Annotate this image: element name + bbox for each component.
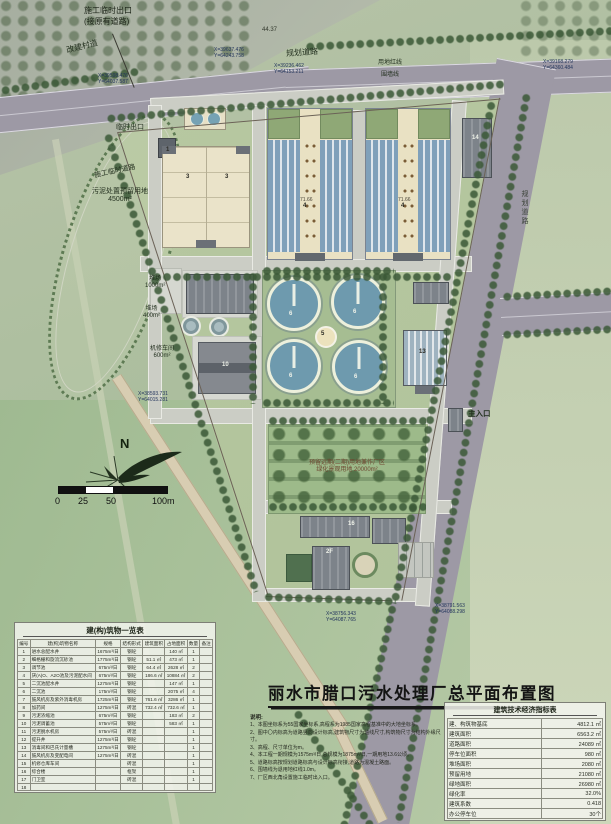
table-cell: 综合楼 <box>30 768 95 776</box>
table-cell: 11 <box>18 728 31 736</box>
table-cell: 1 <box>187 696 200 704</box>
table-cell <box>200 776 213 784</box>
table-cell: 10 <box>18 720 31 728</box>
note-line: 2、图中〇内标高为道路竖向设计标高,建筑物尺寸为轴线尺寸,构筑物尺寸为结构外缘尺… <box>250 730 446 745</box>
coordinate-label: X=39236.462Y=64153.211 <box>274 64 304 76</box>
building-number: 16 <box>348 521 355 527</box>
label-construction-exit: 施工临时出口 (接原有道路) <box>84 6 132 26</box>
table-cell <box>200 664 213 672</box>
label-yard1-text: 堆场 <box>145 276 165 283</box>
distribution-well <box>315 326 337 348</box>
table-cell: 1 <box>18 648 31 656</box>
table-row: 10污泥调蓄池575m³/日钢砼583 ㎡1 <box>18 720 213 728</box>
scale-tick-50: 50 <box>106 496 116 506</box>
table-cell: 575m³/日 <box>95 720 120 728</box>
table-cell <box>143 736 165 744</box>
table-cell <box>200 736 213 744</box>
label-construction-exit-sub: (接原有道路) <box>84 17 132 26</box>
table-row: 办公停车位30个 <box>448 809 603 819</box>
table-cell: 1 <box>187 752 200 760</box>
table-cell <box>165 760 187 768</box>
table-row: 建、构筑物基底4812.1 ㎡ <box>448 719 603 729</box>
table-cell <box>95 784 120 791</box>
table-cell: 3286 ㎡ <box>165 696 187 704</box>
table-cell: 钢砼 <box>121 720 143 728</box>
building-number: 6 <box>354 374 357 380</box>
table-cell: 1 <box>187 656 200 664</box>
table-cell <box>200 688 213 696</box>
clarifier-tank-sw <box>267 339 321 393</box>
table-cell: 583 ㎡ <box>165 720 187 728</box>
clarifier-tank-nw <box>267 277 321 331</box>
table-cell <box>200 760 213 768</box>
building-office-main <box>300 516 370 538</box>
table-cell: 0.418 <box>542 799 603 809</box>
label-main-entrance: 主入口 <box>468 410 491 419</box>
table-row: 15机修仓库车间砖混1 <box>18 760 213 768</box>
indicators-table: 建筑技术经济指标表 建、构筑物基底4812.1 ㎡建筑面积6563.2 ㎡道路面… <box>444 702 606 821</box>
building-dosing-room <box>413 282 449 304</box>
table-row: 建筑面积6563.2 ㎡ <box>448 729 603 739</box>
building-number: 3 <box>225 174 228 180</box>
table-cell: 13 <box>18 744 31 752</box>
table-cell: 2628 ㎡ <box>165 664 187 672</box>
table-cell: 1775m³/日 <box>95 656 120 664</box>
table-cell <box>95 776 120 784</box>
table-row: 16综合楼框架1 <box>18 768 213 776</box>
table-cell: 6563.2 ㎡ <box>542 729 603 739</box>
table-cell <box>200 720 213 728</box>
label-yard2: 堆场 400m² <box>143 306 160 320</box>
table-cell <box>143 712 165 720</box>
table-cell: 4 <box>18 672 31 680</box>
table-header: 占地面积 <box>165 640 187 648</box>
table-header: 建筑面积 <box>143 640 165 648</box>
building-number: 6 <box>289 373 292 379</box>
table-cell: 1275m³/日 <box>95 752 120 760</box>
table-cell: 675m³/日 <box>95 672 120 680</box>
table-cell: 51.1 ㎡ <box>143 656 165 664</box>
table-row: 7鼓风机房及紫外消毒机房1725m³/日钢砼761.6 ㎡3286 ㎡1 <box>18 696 213 704</box>
table-row: 3调节池675m³/日钢砼64.4 ㎡2628 ㎡2 <box>18 664 213 672</box>
buildings-table: 建(构)筑物一览表 编号建(构)筑物名称规格结构形式建筑面积占地面积数量备注1进… <box>14 622 216 793</box>
table-cell: 1 <box>187 768 200 776</box>
building-number: 14 <box>472 135 479 141</box>
table-cell: 1675m³/日 <box>95 648 120 656</box>
building-number: 2F <box>326 549 333 555</box>
notes-list: 1、本图坐标系为55国家坐标系,高程系为1985国家高程基准中的大地坐标系。2、… <box>250 722 446 782</box>
table-cell: 3 <box>18 664 31 672</box>
table-cell <box>143 776 165 784</box>
table-cell: 建、构筑物基底 <box>448 719 542 729</box>
table-cell: 污泥浓缩池 <box>30 712 95 720</box>
building-gatehouse <box>448 408 463 432</box>
coordinate-label: X=39598.476Y=64037.587 <box>98 74 128 86</box>
table-cell <box>200 656 213 664</box>
table-cell: 鼓风机房及变配电间 <box>30 752 95 760</box>
table-cell <box>200 744 213 752</box>
table-cell: 761.6 ㎡ <box>143 696 165 704</box>
table-cell <box>200 712 213 720</box>
table-cell: 9 <box>18 712 31 720</box>
label-planned-road-top: 规划道路 <box>286 47 319 58</box>
tree-row <box>248 272 258 404</box>
table-cell: 2080 ㎡ <box>542 759 603 769</box>
table-row: 6二沉池175m³/日钢砼2075 ㎡4 <box>18 688 213 696</box>
label-workshop-text: 机修车间 <box>150 346 174 353</box>
table-cell: 4 <box>187 688 200 696</box>
table-cell: 砖混 <box>121 704 143 712</box>
notes-block: 说明: 1、本图坐标系为55国家坐标系,高程系为1985国家高程基准中的大地坐标… <box>250 714 446 782</box>
building-number: 4 <box>303 203 306 209</box>
table-cell: 1 <box>187 736 200 744</box>
table-cell: 575m³/日 <box>95 728 120 736</box>
table-cell: 钢砼 <box>121 672 143 680</box>
table-cell: 5 <box>18 680 31 688</box>
label-yard1-area: 1000m² <box>145 283 165 290</box>
table-cell <box>143 760 165 768</box>
label-red-line: 用地红线 <box>378 60 402 67</box>
table-cell: 186.6 ㎡ <box>143 672 165 680</box>
table-cell <box>200 704 213 712</box>
sludge-thickener-2 <box>209 317 229 337</box>
table-row: 13消毒间和巴氏计量槽1275m³/日钢砼1 <box>18 744 213 752</box>
table-row: 14鼓风机房及变配电间1275m³/日砖混1 <box>18 752 213 760</box>
table-cell: 绿化率 <box>448 789 542 799</box>
building-number: 13 <box>419 349 426 355</box>
table-cell: 2075 ㎡ <box>165 688 187 696</box>
tree-row <box>268 502 426 512</box>
building-regulating-basin <box>162 146 250 248</box>
table-cell: 砖混 <box>121 728 143 736</box>
scale-tick-0: 0 <box>55 496 60 506</box>
scale-tick-100: 100m <box>152 496 175 506</box>
table-row: 11污泥脱水机房575m³/日砖混1 <box>18 728 213 736</box>
table-cell: 32.0% <box>542 789 603 799</box>
table-cell <box>165 736 187 744</box>
table-cell: 进水总配水井 <box>30 648 95 656</box>
table-header: 数量 <box>187 640 200 648</box>
note-line: 6、围墙线为退用地红线1.0m。 <box>250 767 446 775</box>
table-cell: 砖混 <box>121 752 143 760</box>
table-cell: 24089 ㎡ <box>542 739 603 749</box>
table-cell: 砖混 <box>121 776 143 784</box>
clarifier-tank-ne <box>331 275 385 329</box>
table-cell <box>165 776 187 784</box>
table-cell: 732.4 ㎡ <box>143 704 165 712</box>
table-cell: 2 <box>187 712 200 720</box>
table-cell: 1 <box>187 704 200 712</box>
table-cell: 预留用地 <box>448 769 542 779</box>
label-sludge-reserve-area: 4500m² <box>92 196 148 204</box>
table-cell <box>143 784 165 791</box>
table-cell <box>143 648 165 656</box>
table-cell: 1 <box>187 760 200 768</box>
table-cell <box>200 672 213 680</box>
table-cell <box>165 784 187 791</box>
scale-bar <box>58 486 168 494</box>
basin-corner-block <box>236 146 250 154</box>
table-cell: 18 <box>18 784 31 791</box>
table-cell <box>165 752 187 760</box>
table-cell: 1275m³/日 <box>95 680 120 688</box>
table-cell: 16 <box>18 768 31 776</box>
table-cell: 1275m³/日 <box>95 704 120 712</box>
table-row: 道路面积24089 ㎡ <box>448 739 603 749</box>
table-cell: 15 <box>18 760 31 768</box>
label-reserved-line1: 预留远期(二期)用地兼作厂区 <box>272 460 422 467</box>
building-number: 4 <box>401 203 404 209</box>
table-cell <box>95 760 120 768</box>
pond <box>286 554 312 582</box>
table-cell: 二沉池配水井 <box>30 680 95 688</box>
table-cell: 473 ㎡ <box>165 656 187 664</box>
table-cell: 1 <box>187 776 200 784</box>
table-cell: 钢砼 <box>121 736 143 744</box>
table-header: 编号 <box>18 640 31 648</box>
table-cell: 183 ㎡ <box>165 712 187 720</box>
coordinate-label: X=38791.563Y=64088.298 <box>435 604 465 616</box>
table-cell: 2 <box>18 656 31 664</box>
building-number: 5 <box>321 331 324 337</box>
table-cell <box>143 688 165 696</box>
coordinate-label: X=39637.476Y=64243.758 <box>214 48 244 60</box>
basin-corner-block <box>196 240 216 248</box>
table-cell <box>200 696 213 704</box>
table-cell: 2 <box>187 664 200 672</box>
table-cell: 钢砼 <box>121 664 143 672</box>
table-cell <box>200 728 213 736</box>
table-cell: 消毒间和巴氏计量槽 <box>30 744 95 752</box>
table-cell <box>143 680 165 688</box>
table-cell: 调节池 <box>30 664 95 672</box>
table-cell: 建筑面积 <box>448 729 542 739</box>
table-cell: 砖混 <box>121 760 143 768</box>
table-cell <box>30 784 95 791</box>
table-cell: 堆场面积 <box>448 759 542 769</box>
table-row: 建筑系数0.418 <box>448 799 603 809</box>
label-yard2-area: 400m² <box>143 313 160 320</box>
table-cell <box>143 768 165 776</box>
table-cell: 12 <box>18 736 31 744</box>
label-workshop-area: 600m² <box>150 353 174 360</box>
table-cell <box>200 768 213 776</box>
table-cell: 绿地面积 <box>448 779 542 789</box>
table-cell: 钢砼 <box>121 696 143 704</box>
note-line: 1、本图坐标系为55国家坐标系,高程系为1985国家高程基准中的大地坐标系。 <box>250 722 446 730</box>
label-workshop: 机修车间 600m² <box>150 346 174 360</box>
label-yard1: 堆场 1000m² <box>145 276 165 290</box>
table-cell: 26980 ㎡ <box>542 779 603 789</box>
coordinate-label: X=38593.731Y=64015.281 <box>138 392 168 404</box>
table-header: 规格 <box>95 640 120 648</box>
tree-row <box>268 416 426 426</box>
table-cell <box>143 720 165 728</box>
internal-road-between-basins <box>352 110 366 260</box>
building-number: 10 <box>222 362 229 368</box>
table-cell: 147 ㎡ <box>165 680 187 688</box>
table-row: 4厌(A)O、A2O池及污泥配水间675m³/日钢砼186.6 ㎡10884 ㎡… <box>18 672 213 680</box>
table-cell: 停车位面积 <box>448 749 542 759</box>
table-cell <box>121 784 143 791</box>
table-row: 9污泥浓缩池675m³/日钢砼183 ㎡2 <box>18 712 213 720</box>
table-cell: 框架 <box>121 768 143 776</box>
label-reserved-line2: 绿化景观用地 20000m² <box>272 467 422 474</box>
table-cell: 7 <box>18 696 31 704</box>
table-cell <box>143 728 165 736</box>
table-cell: 1275m³/日 <box>95 736 120 744</box>
table-cell: 675m³/日 <box>95 664 120 672</box>
table-cell: 钢砼 <box>121 648 143 656</box>
table-cell: 加药间 <box>30 704 95 712</box>
scale-tick-25: 25 <box>78 496 88 506</box>
table-cell: 细格栅和旋流沉砂池 <box>30 656 95 664</box>
table-cell: 建筑系数 <box>448 799 542 809</box>
coordinate-label: X=39168.279Y=64360.484 <box>543 60 573 72</box>
table-cell: 6 <box>18 688 31 696</box>
table-cell: 175m³/日 <box>95 688 120 696</box>
label-sludge-reserve: 污泥处置预留用地 4500m² <box>92 188 148 204</box>
building-a2o-basin-east <box>365 108 451 260</box>
table-cell: 10884 ㎡ <box>165 672 187 680</box>
table-cell: 办公停车位 <box>448 809 542 819</box>
table-cell: 980 ㎡ <box>542 749 603 759</box>
table-cell: 提升井 <box>30 736 95 744</box>
table-cell: 1275m³/日 <box>95 744 120 752</box>
table-cell: 14 <box>18 752 31 760</box>
indicators-table-grid: 建、构筑物基底4812.1 ㎡建筑面积6563.2 ㎡道路面积24089 ㎡停车… <box>447 718 603 819</box>
table-cell <box>165 768 187 776</box>
table-row: 绿化率32.0% <box>448 789 603 799</box>
table-cell: 1 <box>187 744 200 752</box>
table-cell: 1 <box>187 728 200 736</box>
label-temp-exit: 临时出口 <box>116 124 144 132</box>
table-cell: 675m³/日 <box>95 712 120 720</box>
building-number: 1 <box>166 147 169 153</box>
table-cell: 污泥脱水机房 <box>30 728 95 736</box>
label-planned-road-right: 规划道路 <box>520 190 528 226</box>
buildings-table-title: 建(构)筑物一览表 <box>23 625 207 637</box>
label-yard2-text: 堆场 <box>143 306 160 313</box>
table-cell: 机修仓库车间 <box>30 760 95 768</box>
table-row: 8加药间1275m³/日砖混732.4 ㎡732.6 ㎡1 <box>18 704 213 712</box>
table-cell <box>95 768 120 776</box>
table-cell: 30个 <box>542 809 603 819</box>
table-cell: 732.6 ㎡ <box>165 704 187 712</box>
table-cell: 1725m³/日 <box>95 696 120 704</box>
table-cell: 钢砼 <box>121 712 143 720</box>
table-row: 堆场面积2080 ㎡ <box>448 759 603 769</box>
table-cell: 2 <box>187 672 200 680</box>
table-cell: 门卫室 <box>30 776 95 784</box>
tree-row <box>378 272 388 404</box>
table-row: 停车位面积980 ㎡ <box>448 749 603 759</box>
table-header: 备注 <box>200 640 213 648</box>
courtyard-garden <box>352 552 378 578</box>
table-row: 预留用地21080 ㎡ <box>448 769 603 779</box>
table-cell: 钢砼 <box>121 680 143 688</box>
table-header: 建(构)筑物名称 <box>30 640 95 648</box>
building-a2o-basin-west <box>267 108 353 260</box>
coordinate-label: X=38756.343Y=64087.765 <box>326 612 356 624</box>
label-reserved-area: 预留远期(二期)用地兼作厂区 绿化景观用地 20000m² <box>272 460 422 474</box>
table-header: 结构形式 <box>121 640 143 648</box>
label-sludge-reserve-text: 污泥处置预留用地 <box>92 188 148 196</box>
sludge-thickener-1 <box>181 316 201 336</box>
table-cell <box>200 752 213 760</box>
table-cell <box>143 744 165 752</box>
table-row: 17门卫室砖混1 <box>18 776 213 784</box>
building-number: 3 <box>186 174 189 180</box>
table-cell: 厌(A)O、A2O池及污泥配水间 <box>30 672 95 680</box>
table-cell: 8 <box>18 704 31 712</box>
table-cell <box>165 744 187 752</box>
table-cell: 140 ㎡ <box>165 648 187 656</box>
tree-row <box>152 272 452 282</box>
notes-heading: 说明: <box>250 714 446 722</box>
table-cell <box>200 784 213 791</box>
table-cell: 1 <box>187 680 200 688</box>
note-line: 4、本工程一期规模为1575m³/日,总规模为1875m³/日,一期用地13.6… <box>250 752 446 760</box>
table-row: 2细格栅和旋流沉砂池1775m³/日钢砼51.1 ㎡473 ㎡1 <box>18 656 213 664</box>
table-cell: 污泥调蓄池 <box>30 720 95 728</box>
table-cell: 道路面积 <box>448 739 542 749</box>
table-cell: 钢砼 <box>121 656 143 664</box>
indicators-table-title: 建筑技术经济指标表 <box>453 705 597 716</box>
table-cell: 1 <box>187 720 200 728</box>
table-cell <box>200 648 213 656</box>
table-cell <box>165 728 187 736</box>
table-cell: 二沉池 <box>30 688 95 696</box>
table-cell: 1 <box>187 648 200 656</box>
table-cell: 17 <box>18 776 31 784</box>
table-cell <box>187 784 200 791</box>
table-cell: 钢砼 <box>121 744 143 752</box>
buildings-table-grid: 编号建(构)筑物名称规格结构形式建筑面积占地面积数量备注1进水总配水井1675m… <box>17 639 213 791</box>
label-wall-line: 围墙线 <box>381 72 399 79</box>
building-number: 6 <box>289 311 292 317</box>
table-cell: 21080 ㎡ <box>542 769 603 779</box>
tree-row <box>262 398 394 408</box>
table-row: 1进水总配水井1675m³/日钢砼140 ㎡1 <box>18 648 213 656</box>
table-row: 18 <box>18 784 213 791</box>
label-construction-exit-text: 施工临时出口 <box>84 6 132 15</box>
table-row: 绿地面积26980 ㎡ <box>448 779 603 789</box>
table-cell: 鼓风机房及紫外消毒机房 <box>30 696 95 704</box>
table-cell: 钢砼 <box>121 688 143 696</box>
note-line: 7、厂区西北角设置施工临时出入口。 <box>250 775 446 783</box>
table-cell <box>143 752 165 760</box>
site-plan-canvas: 施工临时出口 (接原有道路) 改建村道 规划道路 规划道路 用地红线 围墙线 4… <box>0 0 611 824</box>
table-cell: 4812.1 ㎡ <box>542 719 603 729</box>
building-number: 6 <box>353 309 356 315</box>
table-row: 12提升井1275m³/日钢砼1 <box>18 736 213 744</box>
table-cell: 64.4 ㎡ <box>143 664 165 672</box>
table-cell <box>200 680 213 688</box>
table-row: 5二沉池配水井1275m³/日钢砼147 ㎡1 <box>18 680 213 688</box>
label-dim-top: 44.37 <box>262 27 277 34</box>
